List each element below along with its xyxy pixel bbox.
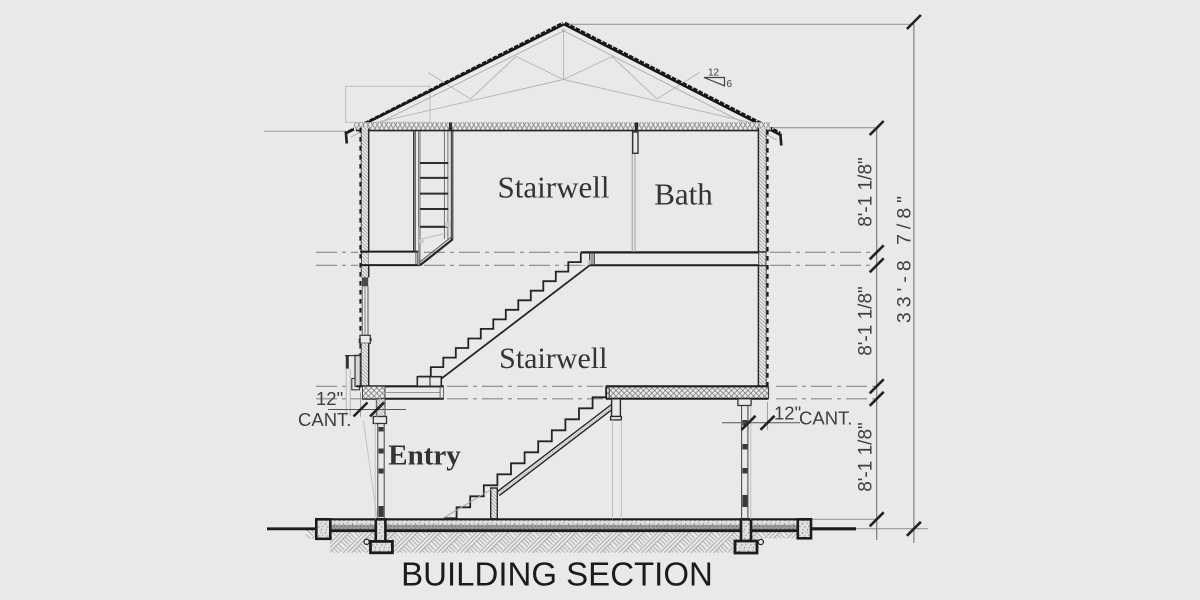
svg-text:12": 12" [316, 388, 343, 409]
svg-text:33'-8 7/8": 33'-8 7/8" [894, 191, 916, 323]
svg-text:8'-1 1/8": 8'-1 1/8" [856, 422, 877, 492]
svg-text:CANT.: CANT. [298, 409, 351, 430]
svg-text:8'-1 1/8": 8'-1 1/8" [856, 157, 877, 227]
svg-text:Stairwell: Stairwell [498, 170, 610, 205]
svg-text:CANT.: CANT. [799, 408, 852, 429]
svg-text:12": 12" [774, 403, 801, 424]
svg-text:Entry: Entry [388, 440, 461, 472]
svg-text:8'-1 1/8": 8'-1 1/8" [856, 286, 877, 356]
svg-text:Stairwell: Stairwell [499, 342, 607, 375]
svg-text:Bath: Bath [654, 177, 713, 212]
svg-text:12: 12 [708, 68, 720, 79]
svg-text:BUILDING SECTION: BUILDING SECTION [401, 556, 713, 593]
svg-text:6: 6 [727, 79, 733, 90]
